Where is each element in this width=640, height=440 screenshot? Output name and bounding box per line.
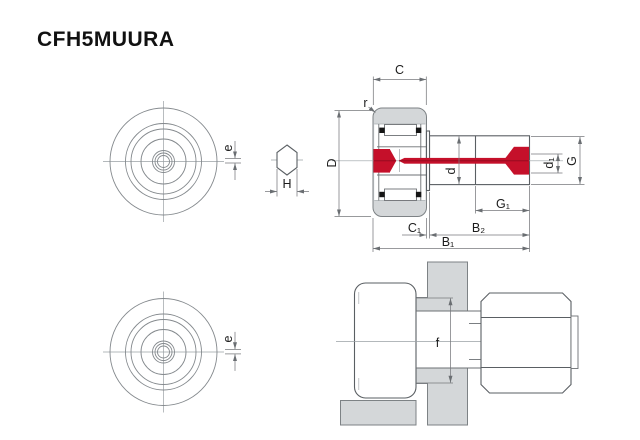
- technical-drawing-page: CFH5MUURA C r D d d₁ G G₁ C₁ B₂ B₁ e H e…: [0, 0, 640, 440]
- dim-label-G: G: [565, 156, 578, 166]
- page-title: CFH5MUURA: [37, 28, 175, 52]
- dim-label-r: r: [363, 97, 367, 110]
- housing-plate-upper: [416, 262, 468, 311]
- dim-label-B1: B₁: [442, 236, 455, 249]
- needle-roller-bottom: [385, 189, 417, 201]
- dim-label-H: H: [282, 177, 291, 190]
- dim-label-e-top: e: [221, 145, 234, 152]
- dim-label-D: D: [325, 158, 338, 167]
- needle-roller-top: [385, 125, 417, 136]
- dim-label-B2: B₂: [472, 221, 485, 234]
- dim-label-f: f: [436, 336, 439, 349]
- dim-label-e-bottom: e: [221, 335, 234, 342]
- drawing-canvas: [0, 0, 640, 440]
- roller-wheel: [355, 283, 417, 398]
- dim-label-C: C: [395, 64, 404, 77]
- housing-plate-lower: [416, 368, 468, 425]
- mounting-example-view: [336, 262, 578, 425]
- dim-label-G1: G₁: [496, 197, 510, 210]
- stud-end-protrusion: [571, 316, 578, 369]
- track-block: [341, 401, 417, 426]
- front-view-top: [103, 101, 241, 222]
- hex-nut: [481, 293, 571, 393]
- dim-label-d1: d₁: [543, 157, 556, 168]
- hexagon: [277, 145, 297, 175]
- front-view-bottom: [103, 292, 241, 413]
- dim-label-d: d: [444, 168, 457, 175]
- dim-label-C1: C₁: [408, 221, 421, 234]
